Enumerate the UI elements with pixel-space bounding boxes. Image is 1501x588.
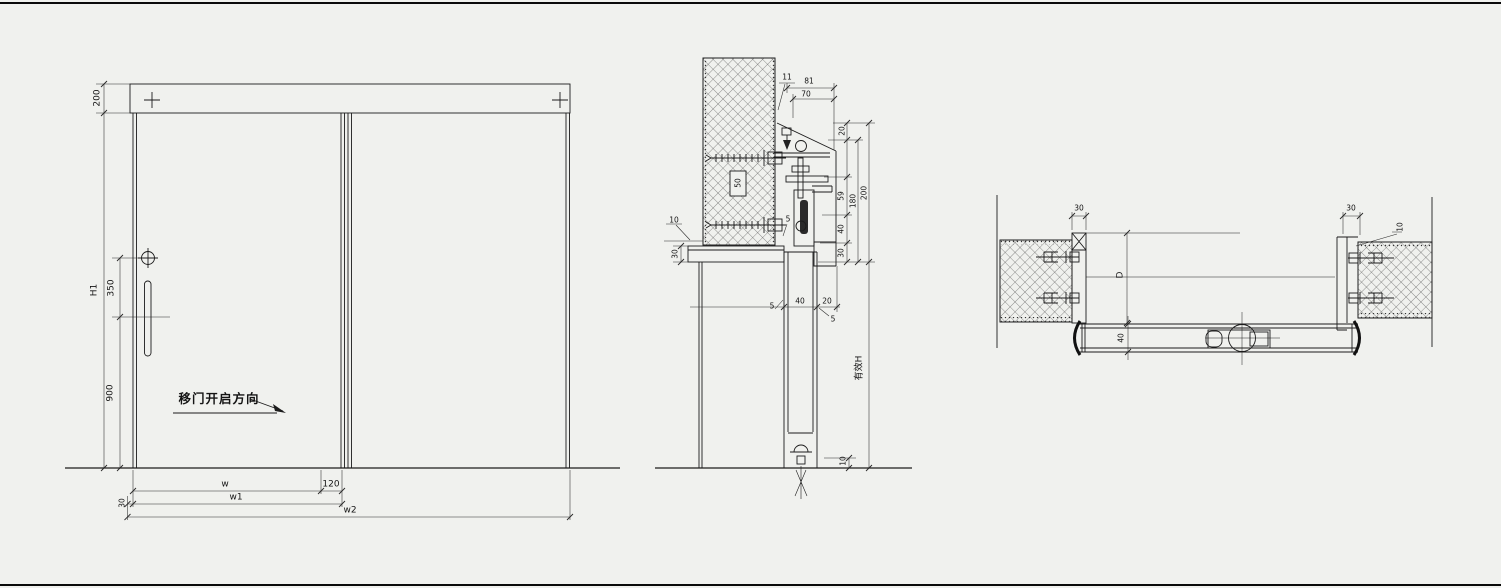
dim-label-gap-5-top: 5 — [786, 215, 791, 223]
door-leaf-section — [784, 252, 817, 468]
lintel-board — [688, 246, 784, 262]
dim-label-jamb-30-left: 30 — [1074, 204, 1084, 212]
dim-label-handle-top: 350 — [108, 279, 117, 296]
dim-label-lintel-30-right: 30 — [837, 248, 845, 258]
dim-label-200: 200 — [860, 186, 868, 200]
dim-label-lintel-30-left: 30 — [671, 249, 679, 259]
dim-label-clear-20: 20 — [822, 297, 832, 305]
dim-label-gap-5-right: 5 — [831, 315, 836, 323]
wall-face-below — [699, 262, 702, 468]
dim-label-gap-5-left: 5 — [770, 302, 775, 310]
section-view — [655, 58, 912, 499]
effective-height-label: 有效H — [856, 356, 865, 381]
dim-label-plan-leaf-40: 40 — [1117, 333, 1125, 343]
dim-label-top-rail: 200 — [94, 89, 103, 106]
dim-label-gap-10: 10 — [1396, 222, 1404, 232]
dim-label-wall-10: 10 — [669, 216, 679, 224]
left-jamb — [1072, 233, 1086, 323]
bottom-guide — [788, 433, 813, 464]
elevation-view — [65, 84, 620, 468]
open-direction-note: 移门开启方向 — [178, 393, 259, 406]
arrowhead — [273, 404, 286, 413]
dim-label-w: w — [221, 481, 228, 490]
dim-label-jamb-30-right: 30 — [1346, 204, 1356, 212]
dim-label-handle-bottom: 900 — [107, 384, 116, 401]
dim-label-door-height: H1 — [91, 284, 100, 297]
dim-label-top-20: 20 — [838, 126, 846, 136]
dim-label-59: 59 — [837, 191, 845, 201]
dim-label-81: 81 — [804, 77, 814, 85]
dim-label-w2: w2 — [343, 507, 356, 516]
door-handle — [145, 281, 152, 356]
dim-label-edge-gap: 30 — [118, 498, 126, 508]
dim-label-120: 120 — [322, 481, 339, 490]
plan-view — [997, 195, 1432, 365]
right-jamb — [1337, 237, 1358, 330]
dim-label-anchor-50: 50 — [734, 178, 742, 188]
hanger-assembly — [774, 141, 832, 247]
dim-label-70: 70 — [801, 90, 811, 98]
dim-label-floor-10: 10 — [839, 456, 847, 466]
top-track — [130, 84, 570, 113]
floor-anchor — [795, 466, 807, 499]
cad-drawing-canvas: 200 H1 350 900 移门开启方向 w 120 w1 w2 30 11 … — [0, 0, 1501, 588]
elevation-dimensions — [96, 81, 573, 520]
cad-linework — [0, 0, 1501, 588]
dim-label-clear-40: 40 — [837, 224, 845, 234]
panel-divider — [341, 113, 352, 468]
dim-label-11: 11 — [782, 73, 792, 81]
leaf-end-cap-left — [1075, 321, 1081, 355]
dim-label-opening-D: D — [1117, 272, 1126, 279]
lock-assembly — [1205, 312, 1280, 365]
center-marks — [144, 92, 568, 108]
dim-label-leaf-40: 40 — [795, 297, 805, 305]
leaf-end-cap-right — [1354, 321, 1360, 355]
dim-label-w1: w1 — [229, 494, 242, 503]
dim-label-180: 180 — [849, 194, 857, 208]
